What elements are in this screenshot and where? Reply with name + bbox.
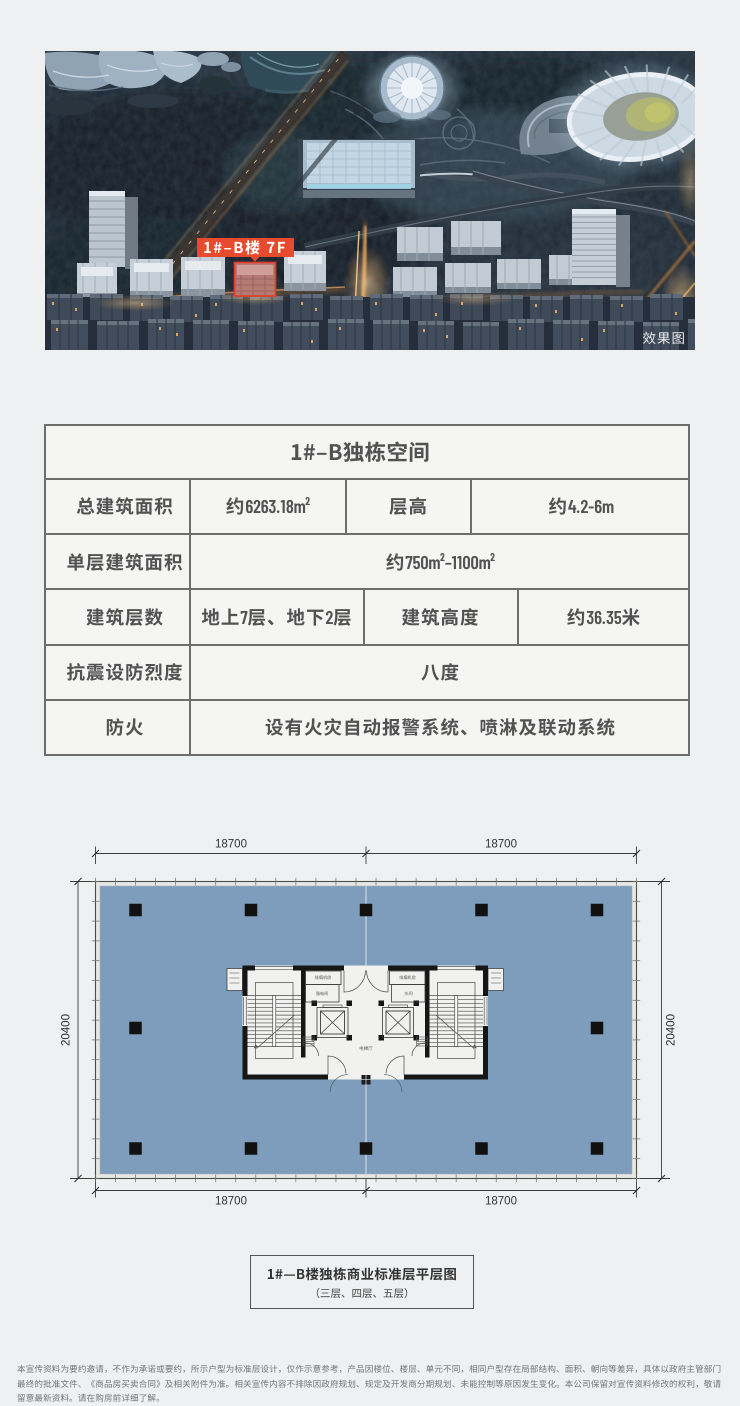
- svg-text:20400: 20400: [666, 1014, 678, 1046]
- svg-text:强电间: 强电间: [316, 991, 329, 997]
- svg-text:排烟机房: 排烟机房: [315, 975, 332, 981]
- svg-text:20400: 20400: [61, 1014, 73, 1046]
- svg-text:排烟机房: 排烟机房: [399, 975, 416, 981]
- svg-text:水间: 水间: [404, 991, 412, 997]
- svg-text:1#–B楼 7F: 1#–B楼 7F: [203, 237, 287, 258]
- svg-text:18700: 18700: [485, 1196, 517, 1208]
- svg-text:电梯厅: 电梯厅: [359, 1046, 373, 1052]
- svg-text:18700: 18700: [485, 839, 517, 851]
- svg-text:18700: 18700: [215, 1196, 247, 1208]
- svg-text:效果图: 效果图: [643, 327, 687, 347]
- svg-text:18700: 18700: [215, 839, 247, 851]
